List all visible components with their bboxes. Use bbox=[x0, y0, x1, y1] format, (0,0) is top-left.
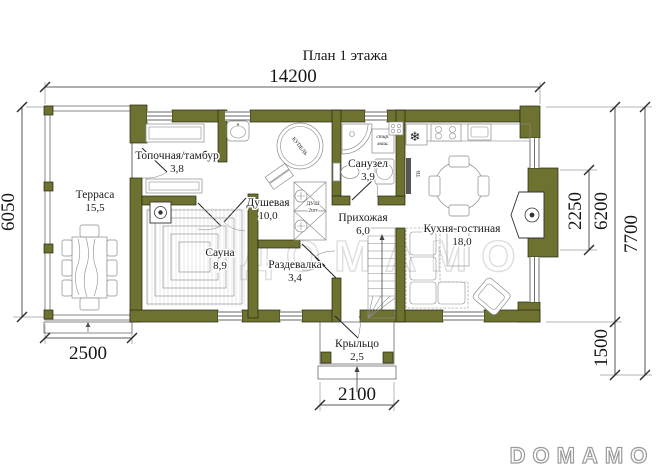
dim-porch-width: 2100 bbox=[338, 384, 376, 405]
room-label-shower: Душевая bbox=[246, 197, 290, 209]
room-area-shower: 10,0 bbox=[258, 210, 278, 222]
domamo-logo: DOMAMO bbox=[510, 443, 655, 468]
window bbox=[529, 138, 540, 168]
window bbox=[529, 257, 540, 302]
sink-icon bbox=[468, 124, 491, 140]
window bbox=[280, 311, 302, 321]
dim-total-depth: 7700 bbox=[621, 215, 642, 253]
water-heater-icon bbox=[389, 122, 403, 135]
plan-title: План 1 этажа bbox=[303, 48, 388, 64]
dim-bay-height: 2250 bbox=[565, 192, 586, 230]
dining-table bbox=[429, 156, 489, 216]
washer-label-line1: стир. bbox=[376, 134, 389, 140]
room-label-boiler: Топочная/тамбур bbox=[135, 150, 219, 162]
room-area-boiler: 3,8 bbox=[170, 163, 184, 175]
room-area-bathroom: 3,9 bbox=[361, 171, 375, 183]
tv-label: ТВ bbox=[416, 170, 422, 177]
shower-stalls-icon: ДУШ 2шт bbox=[294, 182, 326, 240]
stove-icon bbox=[431, 124, 461, 141]
room-label-terrace: Терраса bbox=[76, 189, 115, 201]
room-label-bathroom: Санузел bbox=[348, 158, 388, 170]
room-label-hall: Прихожая bbox=[338, 212, 388, 224]
kitchen-living-room: ❄ ТВ bbox=[406, 124, 544, 316]
room-label-dressing: Раздевалка bbox=[268, 259, 322, 271]
shower-note-line2: 2шт bbox=[308, 208, 318, 214]
dim-terrace-width: 2500 bbox=[69, 343, 107, 364]
shower-note-line1: ДУШ bbox=[306, 201, 320, 207]
room-label-sauna: Сауна bbox=[205, 247, 234, 259]
kitchen-counter: ❄ bbox=[406, 124, 530, 145]
dim-terrace-depth: 6050 bbox=[0, 193, 19, 231]
window bbox=[443, 311, 484, 321]
terrace-table bbox=[62, 225, 117, 310]
sauna-stove-icon bbox=[150, 202, 171, 223]
window bbox=[365, 111, 387, 121]
dim-house-depth: 6200 bbox=[591, 192, 612, 230]
terrace-structure bbox=[44, 106, 132, 333]
fridge-icon: ❄ bbox=[410, 130, 421, 145]
room-area-dressing: 3,4 bbox=[288, 272, 302, 284]
floor-plan-drawing: ДОМАМО План 1 этажа bbox=[0, 0, 665, 470]
window bbox=[218, 311, 242, 321]
window bbox=[147, 111, 172, 121]
room-area-sauna: 8,9 bbox=[213, 260, 227, 272]
dim-total-width: 14200 bbox=[269, 66, 317, 87]
room-label-porch: Крыльцо bbox=[335, 338, 379, 350]
room-area-hall: 6,0 bbox=[356, 225, 370, 237]
tv-icon: ТВ bbox=[406, 158, 422, 194]
tub-icon: КУПЕЛЬ bbox=[265, 123, 323, 189]
corner-shower-icon bbox=[342, 124, 372, 154]
room-area-kitchen: 18,0 bbox=[452, 236, 472, 248]
room-label-kitchen: Кухня-гостиная bbox=[424, 223, 502, 235]
washer-label-line2: маш. bbox=[376, 141, 389, 147]
room-area-porch: 2,5 bbox=[350, 351, 364, 363]
window bbox=[225, 111, 250, 121]
dim-porch-depth: 1500 bbox=[591, 329, 612, 367]
washbasin-icon bbox=[227, 121, 249, 141]
room-area-terrace: 15,5 bbox=[85, 202, 105, 214]
floor-plan-page: ДОМАМО План 1 этажа bbox=[0, 0, 665, 470]
